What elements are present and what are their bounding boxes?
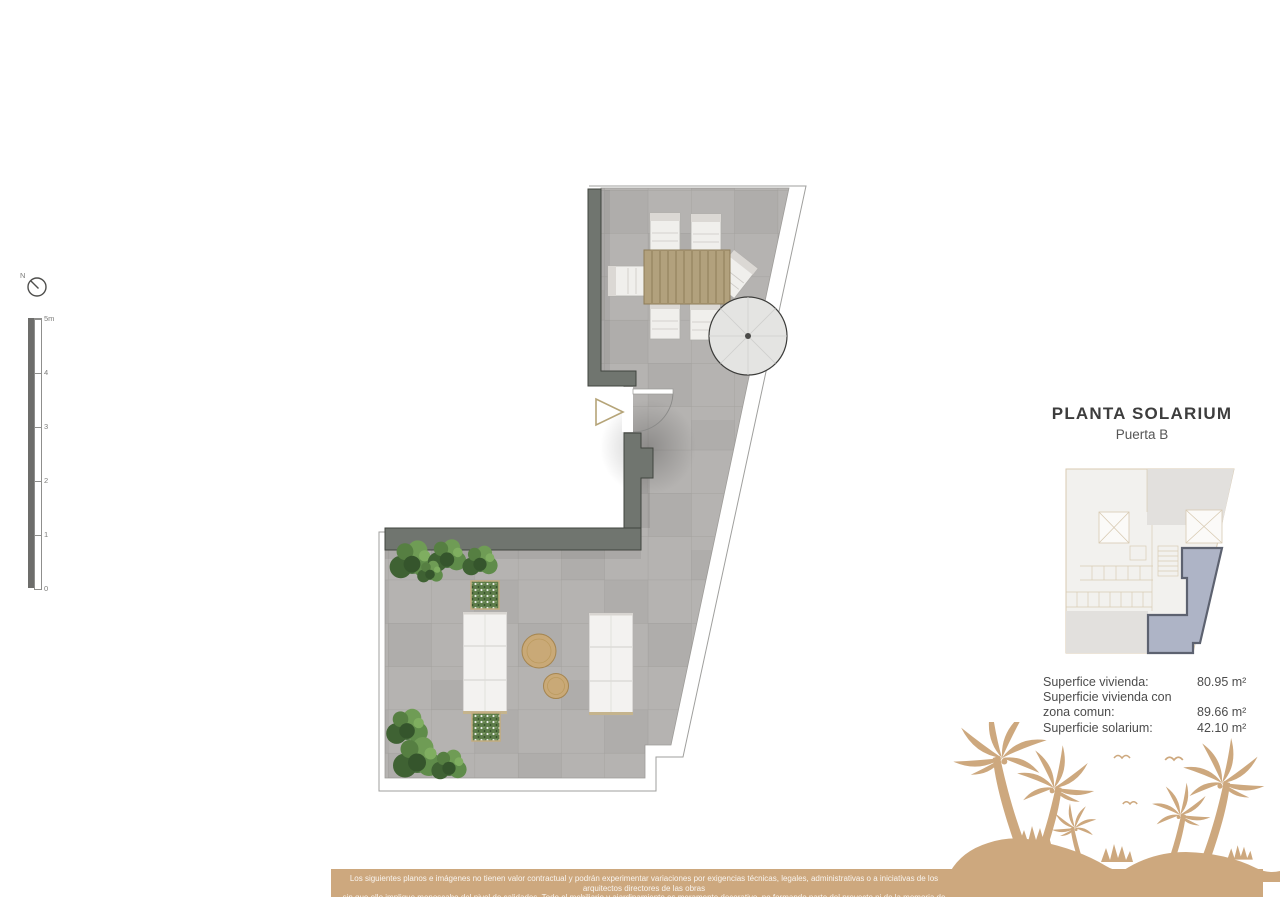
area-row: zona comun: 89.66 m²: [1043, 705, 1255, 720]
scale-tick-label: 1: [44, 531, 48, 539]
page-subtitle: Puerta B: [1022, 427, 1262, 442]
area-row: Superfice vivienda: 80.95 m²: [1043, 675, 1255, 690]
scale-tick-label: 4: [44, 369, 48, 377]
dining-table: [644, 250, 730, 304]
north-indicator: N: [16, 266, 60, 310]
planter-box: [471, 581, 499, 609]
parasol-umbrella: [709, 297, 787, 375]
scale-tick-label: 2: [44, 477, 48, 485]
disclaimer-text: Los siguientes planos e imágenes no tien…: [333, 869, 955, 912]
seagull-icon: [1165, 757, 1183, 760]
location-key-plan: [1055, 462, 1245, 658]
beach-silhouette: [950, 722, 1280, 882]
chair: [691, 214, 721, 252]
chair: [650, 301, 680, 339]
area-value: 80.95 m²: [1197, 675, 1246, 690]
area-label: Superfice vivienda:: [1043, 675, 1197, 690]
coffee-table: [522, 634, 556, 668]
area-value: 89.66 m²: [1197, 705, 1246, 720]
coffee-table: [544, 674, 569, 699]
disclaimer-line: Los siguientes planos e imágenes no tien…: [333, 874, 955, 893]
scale-bar: 5m 4 3 2 1 0: [28, 318, 88, 594]
sofa: [463, 612, 507, 714]
chair: [650, 213, 680, 251]
seagull-icon: [1123, 802, 1137, 804]
area-label: zona comun:: [1043, 705, 1197, 720]
seagull-icon: [1114, 756, 1130, 759]
scale-tick-label: 5m: [44, 315, 54, 323]
keyplan-gray-zone: [1066, 611, 1148, 653]
area-row: Superficie vivienda con: [1043, 690, 1255, 705]
chair: [608, 266, 646, 296]
planter-box: [472, 713, 500, 741]
scale-tick-label: 3: [44, 423, 48, 431]
page-title: PLANTA SOLARIUM: [1022, 404, 1262, 424]
palm-trees-silhouette: [948, 722, 1280, 882]
title-block: PLANTA SOLARIUM Puerta B: [1022, 404, 1262, 442]
north-label: N: [20, 271, 25, 280]
disclaimer-line: sin que ello implique menoscabo del nive…: [333, 893, 955, 912]
sofa: [589, 613, 633, 715]
disclaimer-bar: Los siguientes planos e imágenes no tien…: [331, 869, 1263, 897]
scale-bar-ticks: [34, 318, 42, 590]
plan-sheet: N 5m 4 3 2 1 0: [0, 0, 1280, 913]
solarium-floor-plan: [370, 178, 818, 804]
compass-needle-icon: [31, 281, 39, 289]
scale-tick-label: 0: [44, 585, 48, 593]
area-label: Superficie vivienda con: [1043, 690, 1197, 705]
door-leaf: [633, 389, 673, 394]
